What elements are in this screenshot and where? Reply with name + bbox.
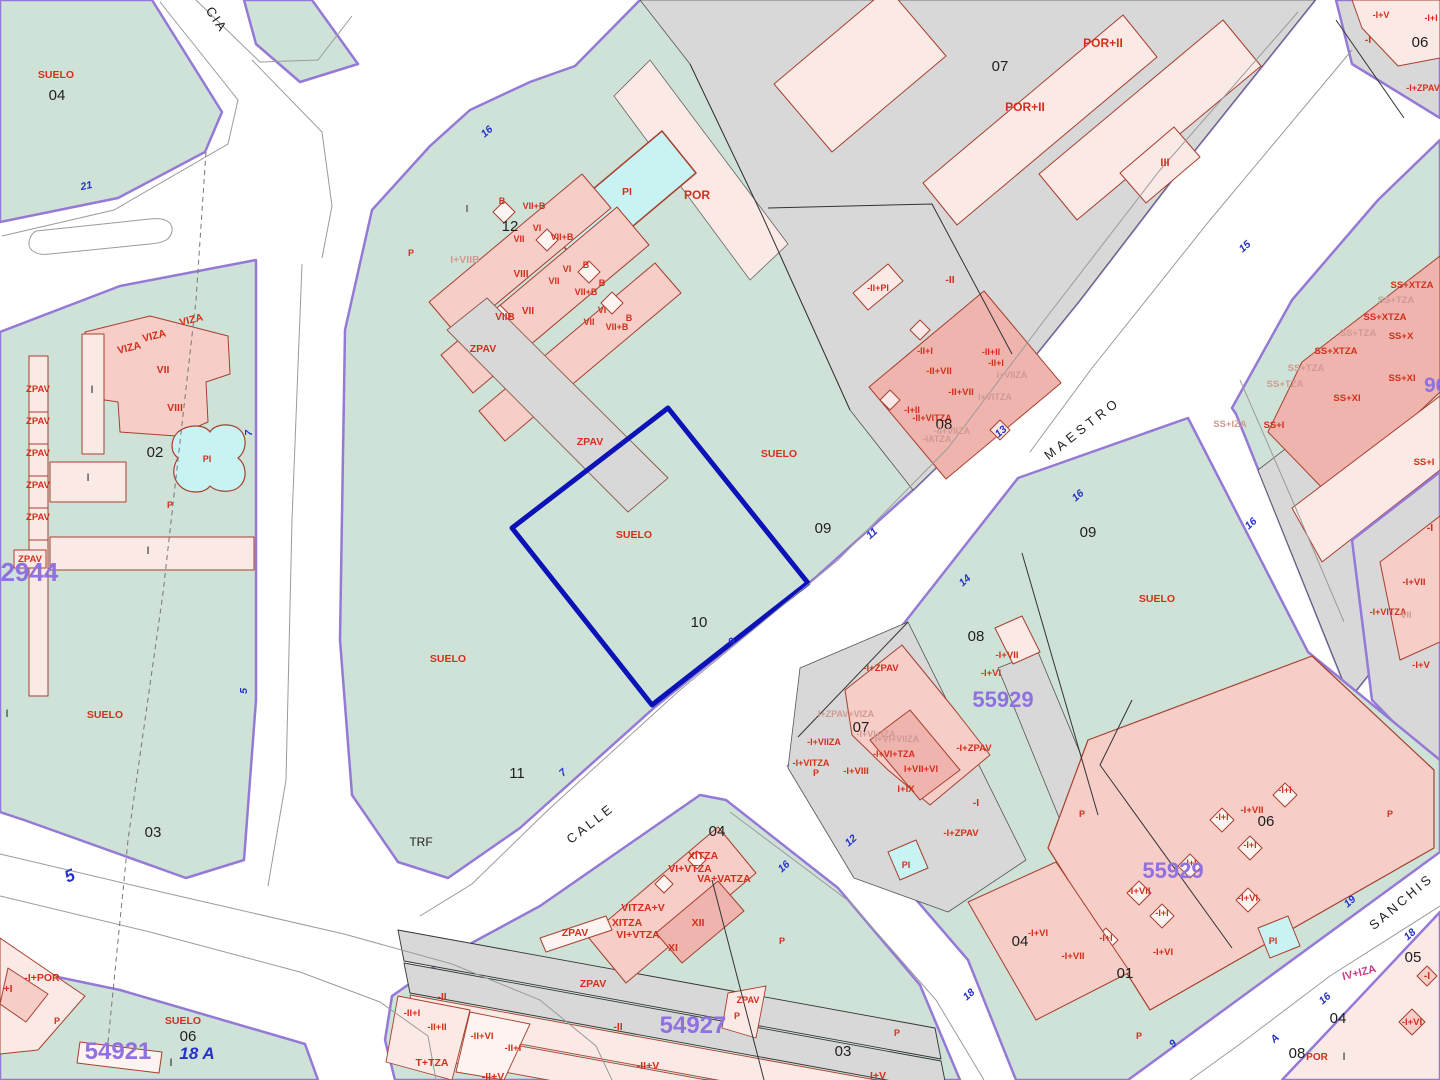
map-label: PI [1269, 936, 1278, 946]
map-label: SUELO [165, 1015, 201, 1027]
map-label: P [408, 248, 414, 258]
map-label: VII+B [551, 232, 574, 242]
map-label: -II+V [482, 1071, 504, 1080]
map-label: I+VITZA [978, 392, 1012, 402]
map-label: -I+V [1373, 10, 1390, 20]
map-label: -II+VII [948, 387, 974, 398]
map-label: 05 [1405, 949, 1422, 966]
map-label: -II [945, 274, 954, 286]
map-label: -II [613, 1021, 622, 1033]
map-label: I [1342, 1051, 1345, 1063]
map-label: B [499, 196, 506, 206]
map-label: SS+XTZA [1314, 346, 1357, 357]
map-label: -II+I [917, 346, 933, 356]
map-label: -II+VII [926, 366, 952, 377]
building-i-long [50, 537, 254, 570]
map-label: I+VI+VIIZA [875, 734, 920, 744]
map-label: ZPAV [580, 978, 606, 990]
map-label: T+TZA [416, 1057, 449, 1069]
map-label: VII [157, 364, 170, 376]
map-label: I [90, 384, 93, 396]
map-label: VII [583, 317, 594, 327]
map-label: -IATZA [923, 434, 952, 444]
map-label: P [734, 1011, 740, 1021]
map-label: SUELO [761, 448, 797, 460]
map-label: -I [1427, 522, 1433, 534]
map-label: -I+VII [1403, 577, 1426, 588]
map-label: ZPAV [26, 384, 51, 395]
map-label: VIIB [495, 312, 514, 323]
map-label: -I+V [1412, 660, 1430, 671]
map-label: -I+VIIZA [807, 737, 841, 747]
map-label: I+VII+VI [904, 764, 938, 775]
map-label: 04 [709, 823, 726, 840]
map-label: -I+I [1215, 812, 1228, 822]
map-label: 52944 [0, 557, 59, 587]
map-label: POR+II [1005, 100, 1045, 114]
cadastral-map-viewport: SUELO0421CIA16VIZAVIZAVIZAVIIVIIIIIIZPAV… [0, 0, 1440, 1080]
map-label: I+IX [897, 784, 915, 795]
map-label: -II+PI [867, 283, 889, 293]
map-label: 11 [509, 765, 525, 782]
map-label: -I+VI [1238, 893, 1258, 904]
map-label: -I+VI [981, 668, 1001, 679]
map-label: VIII [513, 269, 528, 280]
map-label: 04 [1330, 1010, 1347, 1027]
map-label: -II+I [505, 1043, 522, 1054]
map-label: XII [692, 917, 705, 929]
map-label: VA+VATZA [697, 873, 751, 885]
map-label: I [5, 708, 8, 720]
map-label: 08 [1289, 1045, 1306, 1062]
map-label: SUELO [38, 69, 74, 81]
map-label: -I+POR [24, 972, 60, 984]
map-label: ZPAV [470, 343, 496, 355]
map-label: ZPAV [26, 512, 51, 523]
map-label: -I+VI [1153, 947, 1173, 958]
map-label: SS+XTZA [1390, 280, 1433, 291]
map-label: 04 [1012, 933, 1029, 950]
map-label: -II+I [404, 1008, 421, 1019]
map-label: -I+I [1278, 785, 1291, 795]
map-label: XITZA [688, 850, 719, 862]
map-label: P [1387, 809, 1393, 819]
map-label: -I+VI+TZA [873, 749, 916, 759]
map-label: -I+VII [1128, 886, 1151, 897]
map-label: SUELO [430, 653, 466, 665]
map-label: -I+VI [1028, 928, 1048, 939]
map-label: III [1160, 157, 1169, 169]
map-label: VI [563, 264, 572, 274]
map-label: ZPAV [562, 927, 588, 939]
map-label: -II+I [988, 358, 1004, 368]
map-label: SS+TZA [1267, 379, 1304, 390]
cadastral-map: SUELO0421CIA16VIZAVIZAVIZAVIIVIIIIIIZPAV… [0, 0, 1440, 1080]
map-label: 12 [502, 218, 519, 235]
map-label: -I+ZPAV [863, 663, 899, 674]
map-label: -II+II [982, 347, 1000, 357]
map-label: 07 [992, 58, 1009, 75]
map-label: 08 [968, 628, 985, 645]
map-label: SS+XI [1333, 393, 1360, 404]
map-label: POR [1306, 1052, 1328, 1063]
map-label: I+ZPAV+VIZA [818, 709, 875, 719]
map-label: P [1136, 1031, 1142, 1041]
map-label: -I+ZPAV [1406, 83, 1439, 93]
map-label: -II [437, 991, 446, 1003]
map-label: VITZA+V [621, 902, 664, 914]
map-label: -I+VIII [843, 766, 869, 777]
map-label: SS+IZA [1213, 419, 1247, 430]
map-label: SUELO [616, 529, 652, 541]
map-label: VIII [167, 402, 183, 414]
map-label: 06 [1412, 34, 1429, 51]
map-label: P [813, 768, 819, 778]
map-label: SS+XI [1388, 373, 1415, 384]
map-label: 09 [1080, 524, 1097, 541]
map-label: SUELO [87, 709, 123, 721]
map-label: POR [684, 188, 710, 202]
map-label: 965 [1424, 374, 1440, 397]
map-label: -II+V [637, 1060, 659, 1072]
map-label: SS+XTZA [1363, 312, 1406, 323]
map-label: P [894, 1028, 900, 1038]
map-label: 18 A [179, 1044, 214, 1063]
map-label: VI+VTZA [616, 929, 660, 941]
map-label: P [1079, 809, 1085, 819]
map-label: -I+I [1099, 933, 1112, 943]
map-label: B [599, 278, 606, 288]
map-label: -I+I [1243, 840, 1256, 850]
map-label: VI [598, 305, 607, 315]
map-label: VII [522, 306, 534, 317]
map-label: -I+VII [996, 650, 1019, 661]
map-label: -II+II [427, 1022, 446, 1033]
map-label: VII+B [575, 287, 598, 297]
map-label: 01 [1117, 965, 1134, 982]
map-label: I [169, 1057, 172, 1069]
map-label: -I [1365, 34, 1371, 46]
map-label: I [146, 545, 149, 557]
map-label: PI [622, 186, 632, 198]
map-label: SS+TZA [1378, 295, 1415, 306]
map-label: I [466, 204, 469, 215]
map-label: 04 [49, 87, 66, 104]
map-label: -I+I [1424, 13, 1437, 23]
map-label: ZPAV [577, 436, 603, 448]
map-label: PI [203, 454, 212, 464]
map-label: -I+VI [1402, 1017, 1422, 1028]
map-label: 55929 [972, 687, 1033, 712]
map-label: I+VIIB [450, 254, 480, 266]
map-label: 09 [815, 520, 832, 537]
map-label: SS+I [1264, 420, 1285, 431]
map-label: VII+B [523, 201, 546, 211]
map-label: 55929 [1142, 858, 1203, 883]
map-label: 5 [238, 688, 250, 694]
map-label: ZPAV [26, 416, 51, 427]
map-label: TRF [409, 835, 432, 849]
map-label: I+VIIZA [997, 370, 1028, 380]
map-label: -I [973, 797, 979, 809]
map-label: SS+I [1414, 457, 1435, 468]
map-label: ZPAV [26, 480, 51, 491]
map-label: -I+I [1155, 908, 1168, 918]
map-label: P [54, 1016, 60, 1026]
map-label: -I+ZPAV [943, 828, 979, 839]
map-label: VII+B [606, 322, 629, 332]
map-label: 54927 [660, 1012, 727, 1039]
map-label: -II+VI [471, 1031, 494, 1042]
map-label: 06 [180, 1028, 197, 1045]
map-label: POR+II [1083, 36, 1123, 50]
map-label: SS+TZA [1340, 328, 1377, 339]
map-label: ZPAV [737, 995, 760, 1005]
map-label: 10 [691, 614, 708, 631]
strip-zpav-left [29, 356, 48, 696]
map-label: 06 [1258, 813, 1275, 830]
map-label: -I+VITZA [793, 758, 830, 768]
map-label: XI [668, 942, 678, 954]
map-label: VII [1400, 610, 1411, 620]
map-label: -I [1424, 970, 1430, 982]
map-label: PI [902, 860, 911, 870]
map-label: VII [548, 276, 559, 286]
map-label: B [583, 260, 590, 270]
map-label: VI [533, 223, 542, 233]
map-label: ZPAV [26, 448, 51, 459]
map-label: -I+VII [1062, 951, 1085, 962]
map-label: I [86, 472, 89, 484]
map-label: SUELO [1139, 593, 1175, 605]
map-label: 03 [145, 824, 162, 841]
map-label: P [167, 500, 173, 510]
map-label: -I+ZPAV [956, 743, 992, 754]
map-label: SS+TZA [1288, 363, 1325, 374]
map-label: I+V [870, 1070, 886, 1080]
map-label: VII [513, 234, 524, 244]
map-label: 03 [835, 1043, 852, 1060]
map-label: 54921 [85, 1038, 152, 1065]
map-label: 02 [147, 444, 164, 461]
map-label: SS+X [1389, 331, 1414, 342]
map-label: XITZA [612, 917, 643, 929]
map-label: P [779, 936, 785, 946]
map-label: +I [3, 983, 12, 995]
